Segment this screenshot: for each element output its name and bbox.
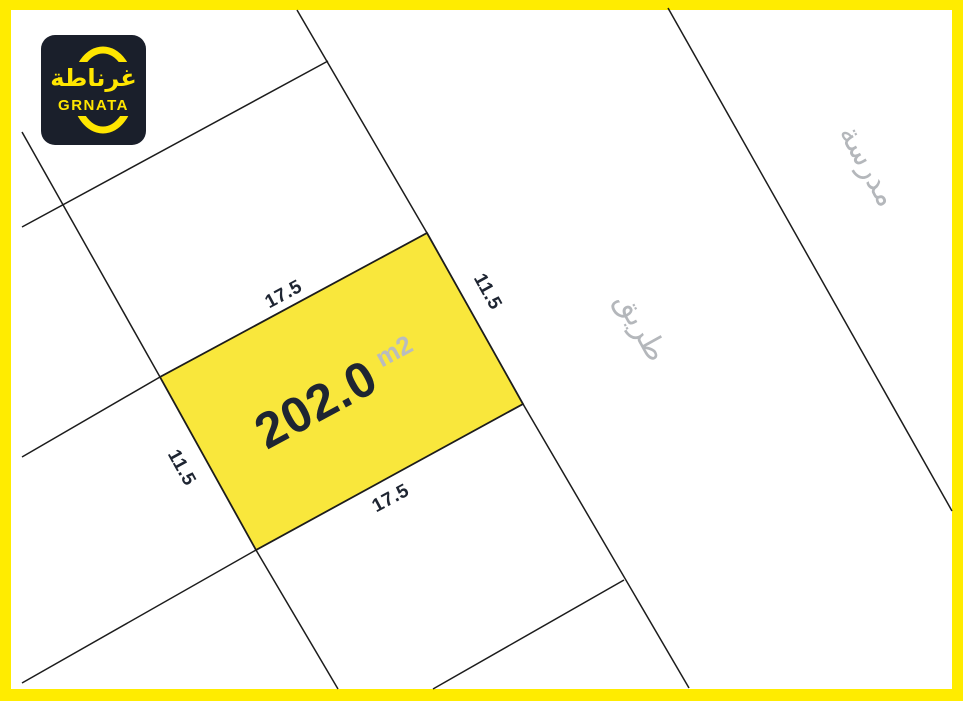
grnata-logo: غرناطة GRNATA	[41, 35, 146, 145]
logo-arabic-wordmark: غرناطة	[41, 65, 146, 91]
boundary-line-south-of-plot	[523, 404, 689, 688]
cross-boundary-bottom-right	[433, 580, 624, 689]
cross-boundary-left	[22, 377, 160, 457]
boundary-line-west-lower	[256, 550, 338, 689]
road-school-boundary-line	[668, 8, 952, 511]
boundary-line-north-of-plot	[297, 10, 427, 233]
logo-latin-wordmark: GRNATA	[41, 97, 146, 114]
cross-boundary-bottom-left	[22, 550, 256, 683]
plot-map-canvas: 202.0 m2 17.5 11.5 11.5 17.5 طريق مدرسة …	[0, 0, 963, 701]
boundary-line-west-upper	[22, 132, 160, 377]
